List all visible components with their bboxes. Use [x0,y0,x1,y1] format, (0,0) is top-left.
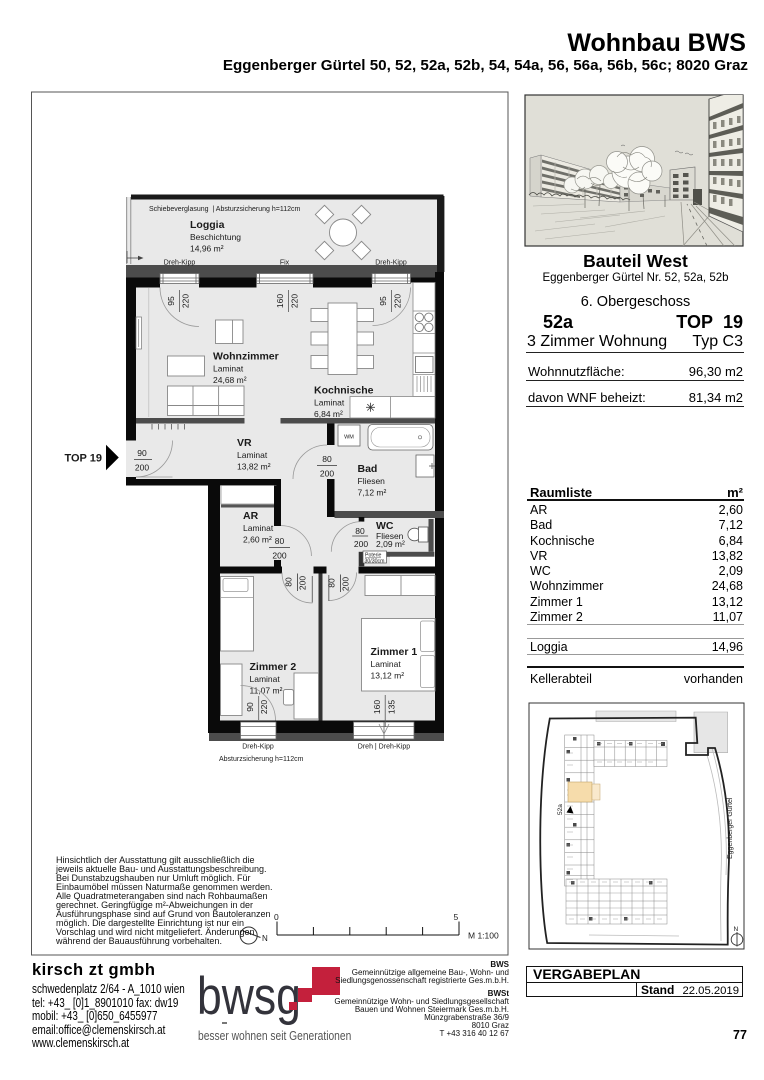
svg-text:Laminat: Laminat [243,523,274,533]
svg-text:Dreh-Kipp: Dreh-Kipp [164,260,196,267]
svg-text:Fix: Fix [280,260,290,267]
svg-text:Laminat: Laminat [213,364,244,374]
svg-text:Zimmer 2: Zimmer 2 [250,661,297,673]
svg-text:Laminat: Laminat [314,398,345,408]
svg-text:80: 80 [284,577,294,587]
svg-text:5: 5 [454,912,459,922]
svg-text:220: 220 [259,700,269,714]
svg-text:Bad: Bad [358,463,378,475]
svg-text:80: 80 [355,526,365,536]
svg-text:Wohnzimmer: Wohnzimmer [213,351,279,363]
svg-text:200: 200 [341,577,351,591]
svg-text:6,84 m²: 6,84 m² [314,409,343,419]
svg-text:220: 220 [290,294,300,308]
svg-text:Fliesen: Fliesen [358,476,386,486]
svg-text:7,12 m²: 7,12 m² [358,488,387,498]
svg-text:30/30cm: 30/30cm [365,559,385,565]
svg-text:135: 135 [387,700,397,714]
svg-text:14,96 m²: 14,96 m² [190,244,224,254]
svg-text:Laminat: Laminat [371,659,402,669]
svg-text:200: 200 [354,539,368,549]
svg-text:Loggia: Loggia [190,219,225,231]
svg-text:Absturzsicherung h=112cm: Absturzsicherung h=112cm [219,756,304,763]
svg-text:M 1:100: M 1:100 [468,931,499,941]
svg-text:2,09 m²: 2,09 m² [376,539,405,549]
svg-text:Dreh | Dreh-Kipp: Dreh | Dreh-Kipp [358,744,411,751]
svg-text:VR: VR [237,437,252,449]
svg-text:200: 200 [135,463,149,473]
svg-text:Eggenberger Gürtel: Eggenberger Gürtel [727,797,734,859]
svg-text:160: 160 [372,700,382,714]
svg-text:13,12 m²: 13,12 m² [371,671,405,681]
svg-text:Laminat: Laminat [237,450,268,460]
svg-text:200: 200 [272,551,286,561]
svg-text:Laminat: Laminat [250,674,281,684]
svg-text:160: 160 [275,294,285,308]
svg-text:AR: AR [243,510,259,522]
svg-text:200: 200 [320,469,334,479]
svg-text:Dreh-Kipp: Dreh-Kipp [242,744,274,751]
svg-text:Zimmer 1: Zimmer 1 [371,646,418,658]
svg-text:TOP 19: TOP 19 [64,453,102,465]
svg-text:90: 90 [245,702,255,712]
svg-text:Beschichtung: Beschichtung [190,232,241,242]
svg-text:220: 220 [181,294,191,308]
svg-text:Dreh-Kipp: Dreh-Kipp [375,260,407,267]
svg-text:95: 95 [166,296,176,306]
svg-text:200: 200 [298,576,308,590]
svg-text:2,60 m²: 2,60 m² [243,535,272,545]
svg-text:WM: WM [344,435,354,441]
svg-text:Kochnische: Kochnische [314,385,374,397]
svg-text:24,68 m²: 24,68 m² [213,375,247,385]
svg-text:95: 95 [378,296,388,306]
svg-text:52a: 52a [557,804,564,815]
svg-text:N: N [734,926,739,933]
svg-text:Schiebeverglasung | Absturzsi: Schiebeverglasung | Absturzsicherung h=1… [149,206,300,213]
svg-text:80: 80 [275,536,285,546]
svg-text:11,07 m²: 11,07 m² [250,686,283,696]
svg-text:90: 90 [137,448,147,458]
svg-text:80: 80 [327,578,337,588]
svg-text:13,82 m²: 13,82 m² [237,462,271,472]
svg-text:80: 80 [322,454,332,464]
svg-text:220: 220 [393,294,403,308]
